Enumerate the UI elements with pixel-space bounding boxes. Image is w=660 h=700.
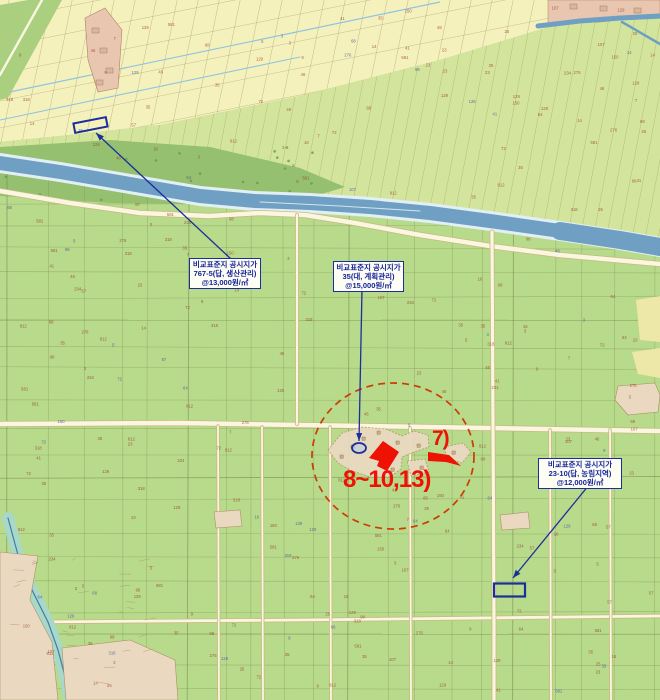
svg-text:129: 129	[617, 7, 625, 12]
svg-text:581: 581	[156, 583, 164, 588]
svg-text:23: 23	[131, 515, 136, 520]
svg-text:57: 57	[131, 122, 136, 127]
svg-text:318: 318	[487, 341, 495, 346]
svg-text:68: 68	[136, 588, 141, 593]
svg-text:150: 150	[611, 54, 619, 59]
svg-text:72: 72	[232, 623, 237, 628]
svg-text:64: 64	[445, 528, 450, 533]
svg-text:57: 57	[607, 600, 612, 605]
svg-text:46: 46	[437, 25, 442, 30]
svg-text:57: 57	[135, 202, 140, 207]
svg-text:129: 129	[309, 527, 317, 532]
svg-text:35: 35	[174, 630, 179, 635]
svg-text:234: 234	[87, 375, 95, 380]
svg-text:23: 23	[426, 63, 431, 68]
label-subject-parcel-7: 7)	[432, 427, 449, 451]
svg-text:318: 318	[284, 553, 292, 558]
svg-text:25: 25	[596, 661, 601, 666]
svg-text:812: 812	[18, 527, 26, 532]
svg-text:35: 35	[146, 104, 151, 109]
svg-text:46: 46	[364, 412, 369, 417]
svg-text:234: 234	[564, 71, 572, 76]
svg-text:129: 129	[256, 57, 264, 62]
callout-parcel: 35(대, 계획관리)	[335, 272, 402, 281]
svg-text:35: 35	[424, 506, 429, 511]
svg-text:35: 35	[285, 652, 290, 657]
svg-text:318: 318	[233, 498, 241, 503]
svg-text:16: 16	[344, 594, 349, 599]
svg-text:72: 72	[185, 305, 190, 310]
svg-text:72: 72	[258, 99, 263, 104]
svg-text:25: 25	[641, 129, 646, 134]
svg-text:150: 150	[270, 523, 278, 528]
svg-text:16: 16	[153, 147, 158, 152]
svg-text:581: 581	[354, 644, 362, 649]
svg-text:276: 276	[344, 52, 352, 57]
svg-text:234: 234	[49, 557, 57, 562]
svg-text:23: 23	[596, 670, 601, 675]
svg-text:72: 72	[256, 674, 261, 679]
svg-text:35: 35	[481, 324, 486, 329]
svg-text:107: 107	[402, 568, 410, 573]
svg-text:812: 812	[20, 323, 28, 328]
svg-text:234: 234	[517, 543, 525, 548]
svg-text:72: 72	[301, 291, 306, 296]
svg-text:129: 129	[102, 469, 110, 474]
svg-text:276: 276	[119, 238, 127, 243]
svg-text:129: 129	[67, 613, 75, 618]
callout-official-price-west: 비교표준지 공시지가 767-5(답, 생산관리) @13,000원/㎡	[189, 258, 261, 289]
svg-text:98: 98	[209, 631, 214, 636]
svg-text:46: 46	[286, 107, 291, 112]
callout-price: @12,000원/㎡	[540, 478, 620, 487]
svg-text:35: 35	[41, 481, 46, 486]
svg-text:25: 25	[325, 612, 330, 617]
svg-text:68: 68	[7, 205, 12, 210]
svg-text:107: 107	[552, 6, 560, 11]
svg-text:107: 107	[378, 295, 386, 300]
svg-text:46: 46	[485, 365, 490, 370]
svg-text:581: 581	[167, 212, 175, 217]
svg-text:23: 23	[138, 282, 143, 287]
svg-text:23: 23	[442, 47, 447, 52]
svg-text:46: 46	[595, 436, 600, 441]
svg-text:150: 150	[512, 101, 520, 106]
svg-text:129: 129	[469, 99, 477, 104]
svg-text:35: 35	[518, 165, 523, 170]
svg-text:35: 35	[60, 341, 65, 346]
svg-text:581: 581	[591, 140, 599, 145]
svg-text:41: 41	[496, 688, 501, 693]
svg-text:581: 581	[401, 55, 409, 60]
svg-text:72: 72	[332, 130, 337, 135]
svg-text:35: 35	[378, 16, 383, 21]
map-canvas: 1481210731835646881241354125982344681272…	[0, 0, 660, 700]
svg-text:25: 25	[107, 683, 112, 688]
svg-text:318: 318	[6, 97, 14, 102]
svg-text:23: 23	[633, 338, 638, 343]
svg-text:812: 812	[186, 403, 194, 408]
svg-text:581: 581	[270, 545, 278, 550]
svg-text:72: 72	[431, 298, 436, 303]
svg-text:23: 23	[443, 69, 448, 74]
svg-text:41: 41	[493, 112, 498, 117]
svg-text:35: 35	[598, 207, 603, 212]
svg-text:46: 46	[600, 86, 605, 91]
svg-text:35: 35	[471, 195, 476, 200]
svg-text:14: 14	[650, 52, 655, 57]
svg-text:72: 72	[517, 609, 522, 614]
svg-text:129: 129	[221, 656, 229, 661]
svg-text:46: 46	[301, 72, 306, 77]
svg-text:107: 107	[565, 439, 573, 444]
svg-text:68: 68	[423, 496, 428, 501]
svg-text:581: 581	[555, 689, 563, 694]
svg-text:25: 25	[633, 31, 638, 36]
standard-lot-ellipse-center	[352, 443, 366, 453]
svg-text:318: 318	[35, 445, 43, 450]
svg-text:581: 581	[36, 218, 44, 223]
svg-text:318: 318	[305, 317, 313, 322]
svg-text:581: 581	[21, 386, 29, 391]
callout-parcel: 767-5(답, 생산관리)	[191, 269, 259, 278]
svg-text:276: 276	[416, 630, 424, 635]
svg-text:35: 35	[601, 663, 606, 668]
svg-text:72: 72	[501, 146, 506, 151]
svg-text:98: 98	[360, 615, 365, 620]
svg-text:107: 107	[598, 42, 606, 47]
svg-text:129: 129	[93, 142, 101, 147]
svg-text:35: 35	[97, 436, 102, 441]
svg-text:234: 234	[492, 385, 500, 390]
svg-text:276: 276	[82, 329, 90, 334]
svg-text:68: 68	[49, 320, 54, 325]
svg-text:35: 35	[588, 650, 593, 655]
svg-text:276: 276	[610, 127, 618, 132]
svg-text:68: 68	[481, 456, 486, 461]
svg-text:276: 276	[292, 555, 300, 560]
svg-text:16: 16	[304, 140, 309, 145]
svg-text:107: 107	[389, 657, 397, 662]
svg-text:318: 318	[125, 251, 133, 256]
svg-text:64: 64	[610, 294, 615, 299]
svg-text:23: 23	[485, 70, 490, 75]
svg-text:64: 64	[186, 175, 191, 180]
svg-text:129: 129	[277, 388, 285, 393]
svg-text:68: 68	[92, 591, 97, 596]
svg-text:812: 812	[47, 651, 55, 656]
hamlet-south	[214, 510, 242, 528]
svg-text:14: 14	[448, 660, 453, 665]
callout-title: 비교표준지 공시지가	[335, 263, 402, 272]
svg-text:16: 16	[254, 515, 259, 520]
label-subject-parcels-8-10-13: 8~10,13)	[343, 466, 430, 494]
svg-text:41: 41	[495, 378, 500, 383]
svg-text:72: 72	[26, 471, 31, 476]
svg-text:16: 16	[612, 654, 617, 659]
svg-text:234: 234	[74, 287, 82, 292]
svg-text:14: 14	[372, 44, 377, 49]
callout-parcel: 23-10(답, 농림지역)	[540, 469, 620, 478]
svg-text:234: 234	[177, 458, 185, 463]
svg-text:41: 41	[49, 263, 54, 268]
svg-text:14: 14	[30, 121, 35, 126]
svg-text:812: 812	[505, 340, 513, 345]
svg-text:35: 35	[376, 407, 381, 412]
svg-text:150: 150	[405, 9, 413, 14]
callout-price: @15,000원/㎡	[335, 281, 402, 290]
svg-text:68: 68	[50, 355, 55, 360]
svg-text:129: 129	[564, 523, 572, 528]
svg-text:16: 16	[554, 531, 559, 536]
svg-text:129: 129	[493, 658, 501, 663]
svg-text:68: 68	[229, 217, 234, 222]
svg-text:276: 276	[210, 653, 218, 658]
svg-text:318: 318	[571, 207, 579, 212]
svg-text:98: 98	[630, 419, 635, 424]
svg-text:129: 129	[541, 106, 549, 111]
svg-text:581: 581	[595, 628, 603, 633]
svg-text:318: 318	[109, 651, 117, 656]
callout-official-price-east: 비교표준지 공시지가 23-10(답, 농림지역) @12,000원/㎡	[538, 458, 622, 489]
svg-text:812: 812	[225, 448, 233, 453]
svg-text:64: 64	[519, 627, 524, 632]
svg-text:129: 129	[295, 521, 303, 526]
svg-text:57: 57	[81, 289, 86, 294]
svg-text:98: 98	[415, 67, 420, 72]
svg-text:98: 98	[498, 283, 503, 288]
svg-text:276: 276	[630, 383, 638, 388]
svg-text:812: 812	[479, 444, 487, 449]
svg-text:129: 129	[439, 683, 447, 688]
svg-text:276: 276	[574, 70, 582, 75]
svg-text:14: 14	[93, 680, 98, 685]
svg-text:46: 46	[442, 389, 447, 394]
svg-text:318: 318	[138, 486, 146, 491]
svg-text:72: 72	[117, 377, 122, 382]
svg-text:150: 150	[377, 547, 385, 552]
svg-text:150: 150	[227, 251, 235, 256]
svg-text:581: 581	[302, 175, 310, 180]
svg-text:35: 35	[458, 323, 463, 328]
hamlet-southeast	[500, 512, 530, 530]
svg-text:64: 64	[183, 385, 188, 390]
svg-text:23: 23	[629, 471, 634, 476]
svg-text:150: 150	[58, 419, 66, 424]
svg-text:46: 46	[280, 351, 285, 356]
svg-text:16: 16	[478, 276, 483, 281]
svg-text:72: 72	[216, 445, 221, 450]
svg-text:41: 41	[405, 46, 410, 51]
svg-text:46: 46	[91, 48, 96, 53]
svg-text:25: 25	[240, 666, 245, 671]
svg-text:41: 41	[36, 456, 41, 461]
svg-text:98: 98	[526, 236, 531, 241]
svg-text:150: 150	[437, 493, 445, 498]
svg-text:35: 35	[182, 246, 187, 251]
callout-title: 비교표준지 공시지가	[191, 260, 259, 269]
svg-text:129: 129	[142, 25, 150, 30]
svg-text:129: 129	[134, 594, 142, 599]
svg-text:64: 64	[413, 519, 418, 524]
svg-text:581: 581	[51, 248, 59, 253]
svg-text:35: 35	[489, 63, 494, 68]
svg-text:57: 57	[530, 545, 535, 550]
svg-text:35: 35	[49, 532, 54, 537]
svg-text:150: 150	[23, 624, 31, 629]
svg-text:98: 98	[110, 635, 115, 640]
svg-text:812: 812	[69, 625, 77, 630]
svg-text:812: 812	[230, 138, 238, 143]
svg-text:276: 276	[242, 420, 250, 425]
svg-text:318: 318	[23, 97, 31, 102]
svg-text:68: 68	[367, 105, 372, 110]
svg-text:64: 64	[488, 496, 493, 501]
svg-text:35: 35	[88, 641, 93, 646]
svg-text:46: 46	[555, 248, 560, 253]
svg-text:98: 98	[65, 247, 70, 252]
svg-text:16: 16	[523, 324, 528, 329]
svg-text:41: 41	[637, 178, 642, 183]
svg-text:107: 107	[631, 427, 639, 432]
svg-text:812: 812	[329, 683, 337, 688]
svg-text:64: 64	[538, 112, 543, 117]
callout-official-price-center: 비교표준지 공시지가 35(대, 계획관리) @15,000원/㎡	[333, 261, 404, 292]
svg-text:68: 68	[331, 625, 336, 630]
svg-text:23: 23	[128, 441, 133, 446]
svg-text:72: 72	[41, 439, 46, 444]
svg-text:129: 129	[513, 94, 521, 99]
svg-text:35: 35	[215, 82, 220, 87]
svg-text:812: 812	[390, 191, 398, 196]
svg-text:68: 68	[592, 522, 597, 527]
svg-text:23: 23	[417, 370, 422, 375]
svg-text:318: 318	[165, 237, 173, 242]
svg-text:581: 581	[32, 401, 40, 406]
svg-text:64: 64	[310, 594, 315, 599]
svg-text:812: 812	[498, 183, 506, 188]
svg-text:68: 68	[205, 43, 210, 48]
svg-text:14: 14	[577, 118, 582, 123]
svg-text:581: 581	[375, 533, 383, 538]
svg-text:234: 234	[407, 300, 415, 305]
svg-text:57: 57	[162, 357, 167, 362]
svg-text:68: 68	[640, 119, 645, 124]
callout-title: 비교표준지 공시지가	[540, 460, 620, 469]
svg-text:129: 129	[349, 610, 357, 615]
svg-text:68: 68	[351, 38, 356, 43]
svg-text:276: 276	[393, 504, 401, 509]
svg-text:41: 41	[340, 16, 345, 21]
cadastral-appraisal-map: 1481210731835646881241354125982344681272…	[0, 0, 660, 700]
svg-text:129: 129	[132, 70, 140, 75]
svg-text:57: 57	[649, 590, 654, 595]
svg-text:14: 14	[627, 50, 632, 55]
svg-text:57: 57	[606, 525, 611, 530]
callout-price: @13,000원/㎡	[191, 278, 259, 287]
svg-text:129: 129	[441, 93, 449, 98]
svg-text:25: 25	[505, 29, 510, 34]
svg-text:107: 107	[349, 187, 357, 192]
svg-text:64: 64	[38, 594, 43, 599]
svg-text:68: 68	[632, 178, 637, 183]
svg-text:14: 14	[141, 326, 146, 331]
svg-text:812: 812	[100, 336, 108, 341]
svg-text:46: 46	[158, 70, 163, 75]
svg-text:64: 64	[622, 335, 627, 340]
svg-text:318: 318	[211, 323, 219, 328]
svg-text:46: 46	[70, 274, 75, 279]
svg-text:581: 581	[168, 22, 176, 27]
svg-text:35: 35	[362, 654, 367, 659]
svg-text:129: 129	[173, 505, 181, 510]
paddy-patch-east-1	[636, 296, 660, 342]
svg-text:129: 129	[632, 80, 640, 85]
svg-text:72: 72	[600, 343, 605, 348]
